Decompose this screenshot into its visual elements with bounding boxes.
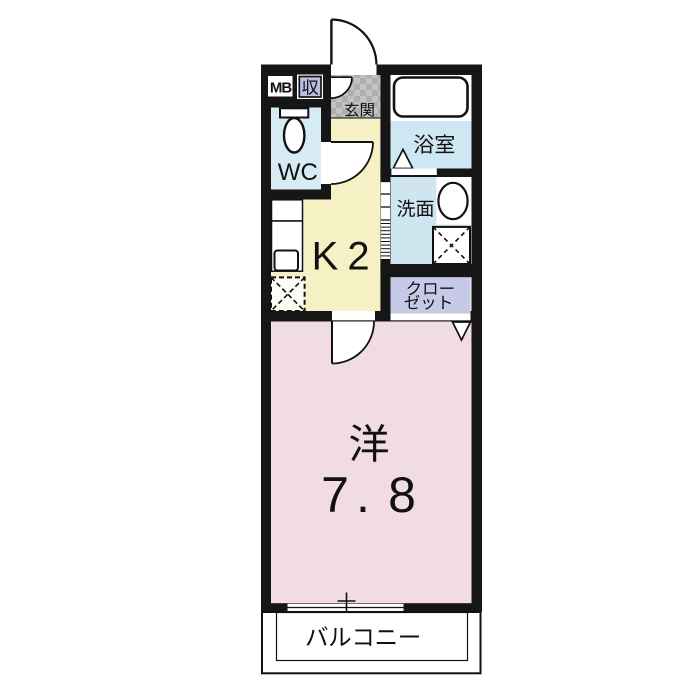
svg-text:K: K [312,235,339,279]
svg-text:WC: WC [278,159,318,186]
svg-text:MB: MB [270,80,292,97]
svg-text:7: 7 [321,467,349,523]
svg-text:8: 8 [388,467,416,523]
svg-text:2: 2 [347,235,369,279]
svg-text:.: . [356,467,370,523]
